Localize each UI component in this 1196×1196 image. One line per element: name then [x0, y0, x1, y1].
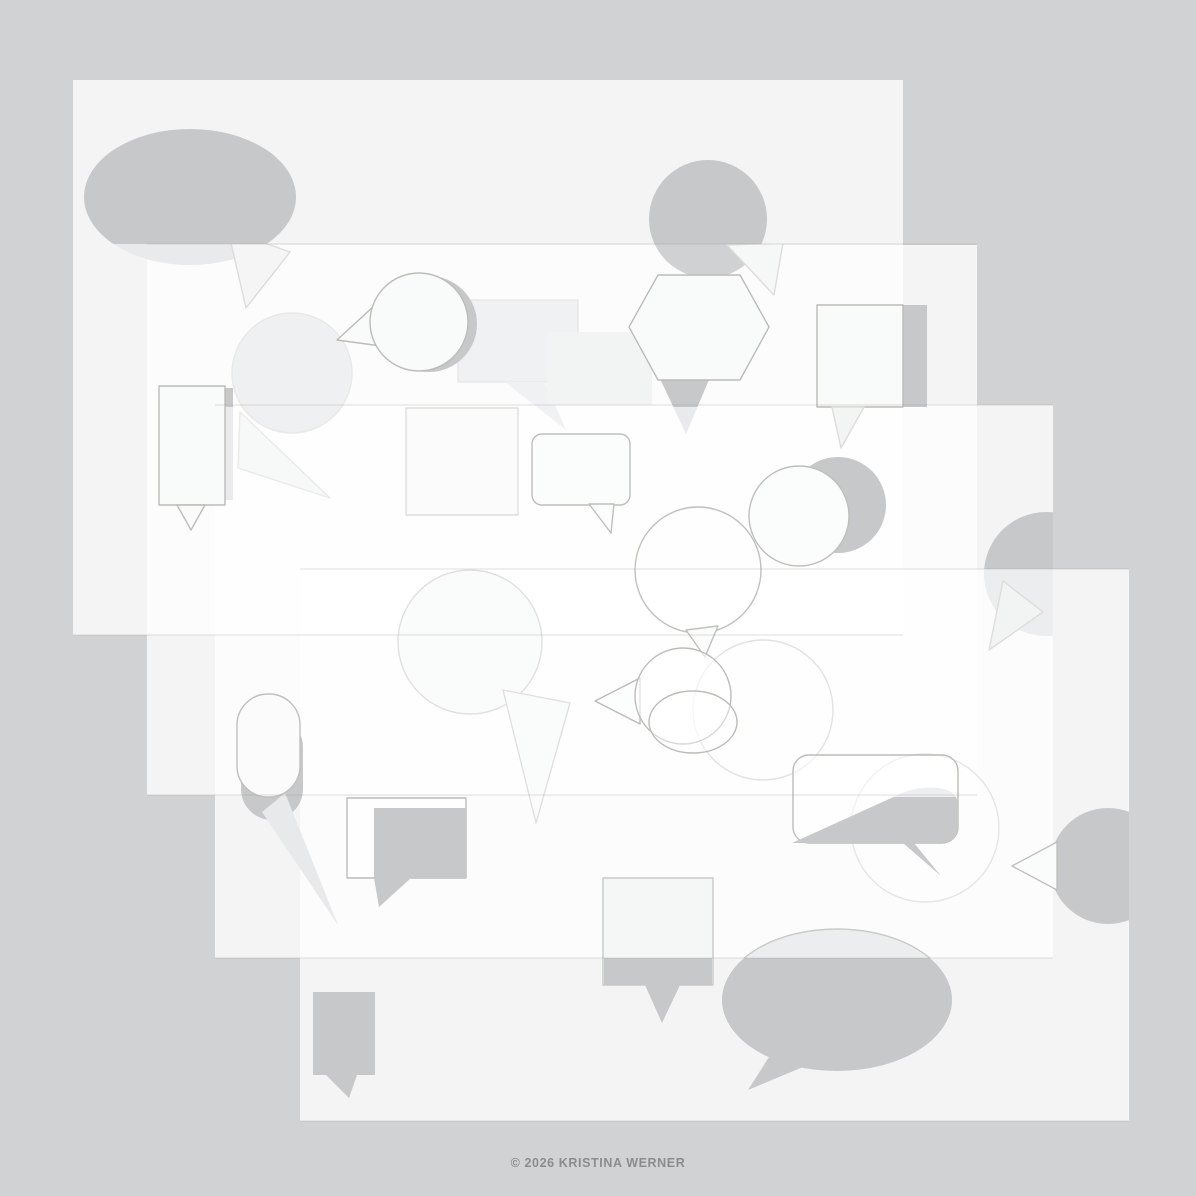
speech-bubble-square-faint [547, 332, 652, 405]
speech-bubble-chatround-outline [532, 434, 630, 505]
speech-bubble-chat2-solid-offset [374, 808, 466, 878]
speech-bubble-pop2-outline [649, 691, 737, 753]
speech-bubble-drop-outline [370, 273, 468, 371]
speech-bubble-stadium-outline [237, 694, 300, 797]
speech-bubble-tag-outline [159, 386, 225, 505]
speech-bubble-round3-outline [749, 466, 849, 566]
product-image-canvas: © 2026 KRISTINA WERNER [0, 0, 1196, 1196]
speech-bubble-hexagon-outline [629, 275, 769, 380]
speech-bubble-square4-solid-band [604, 958, 712, 985]
speech-bubble-banner-solid [313, 992, 375, 1075]
speech-bubble-balloon-outline [635, 507, 761, 633]
speech-bubble-square3-faint-outline [406, 408, 518, 515]
speech-bubble-round2-faint-outline [398, 570, 542, 714]
speech-bubble-round-faint [232, 313, 352, 433]
copyright-text: © 2026 KRISTINA WERNER [0, 1156, 1196, 1170]
die-sheets-graphic [0, 0, 1196, 1196]
speech-bubble-square2-outline [817, 305, 903, 407]
